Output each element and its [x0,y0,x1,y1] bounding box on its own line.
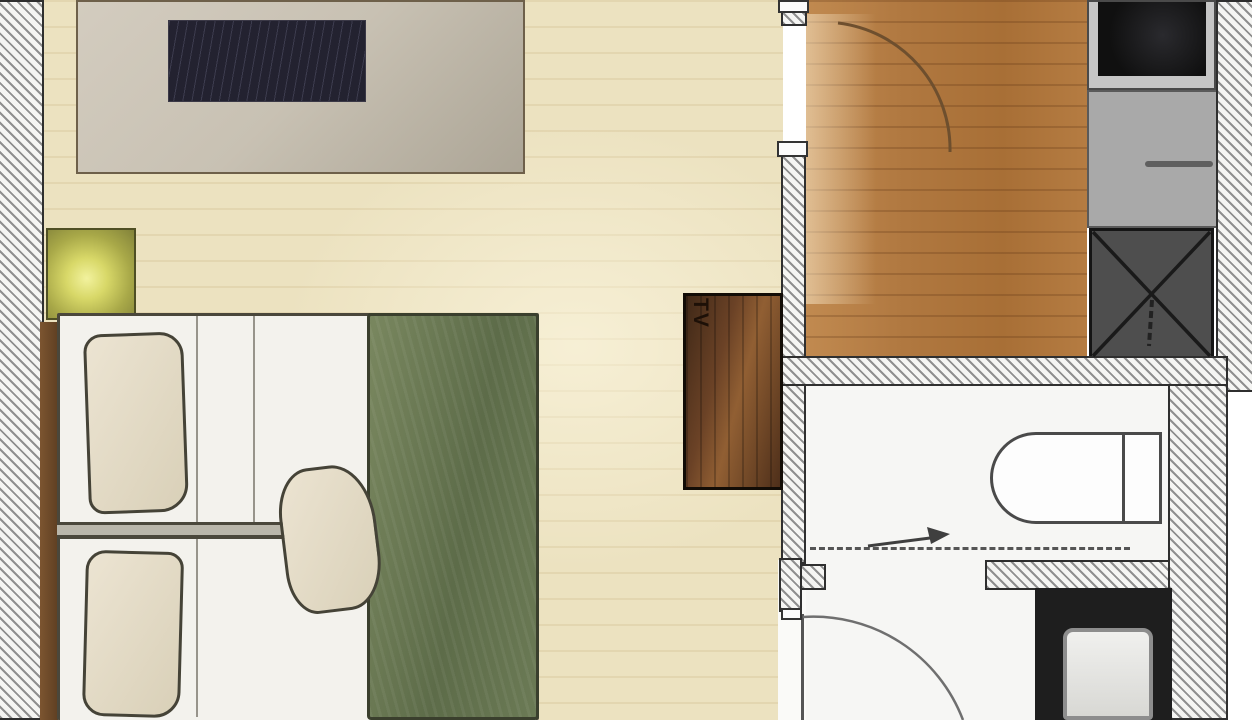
wall-right-lower [1168,384,1228,720]
wall-bathroom-left [781,384,806,564]
duvet-fold-line [196,316,198,522]
door-jamb-top [778,0,809,13]
counter-label-smudge [1145,161,1213,167]
cooktop [1098,2,1206,76]
wall-post-bathroom-door-left [779,558,802,612]
floorplan-canvas: TV [0,0,1252,720]
wall-right-upper [1216,0,1252,392]
lower-room-wall-line [801,614,804,720]
wall-bathroom-door-right [985,560,1170,590]
shower-screen-dashed [810,547,1130,550]
pillow [83,331,189,514]
nightstand-lamp [46,228,136,320]
wall-left [0,0,44,720]
door-jamb-bedroom-entry [777,141,808,157]
window-sill [40,322,58,720]
wall-post-nub [800,564,826,590]
pillow [82,550,184,719]
wall-bedroom-entry [781,155,806,358]
duvet-fold-line [196,539,198,717]
wall-entry-bathroom [781,356,1228,386]
wall-post-entry-top [781,11,807,26]
washbasin [1063,628,1153,720]
tv-cabinet-label: TV [687,298,713,358]
toilet-bowl [990,432,1125,524]
door-jamb-bathroom [781,608,802,620]
kitchen-counter [1087,90,1218,228]
sideboard-dark-panel [168,20,366,102]
doorway-light-wedge [806,14,876,304]
duvet-fold-line [253,316,255,522]
green-bed-runner [367,313,539,720]
appliance-crossed [1089,228,1214,360]
toilet-tank [1122,432,1162,524]
